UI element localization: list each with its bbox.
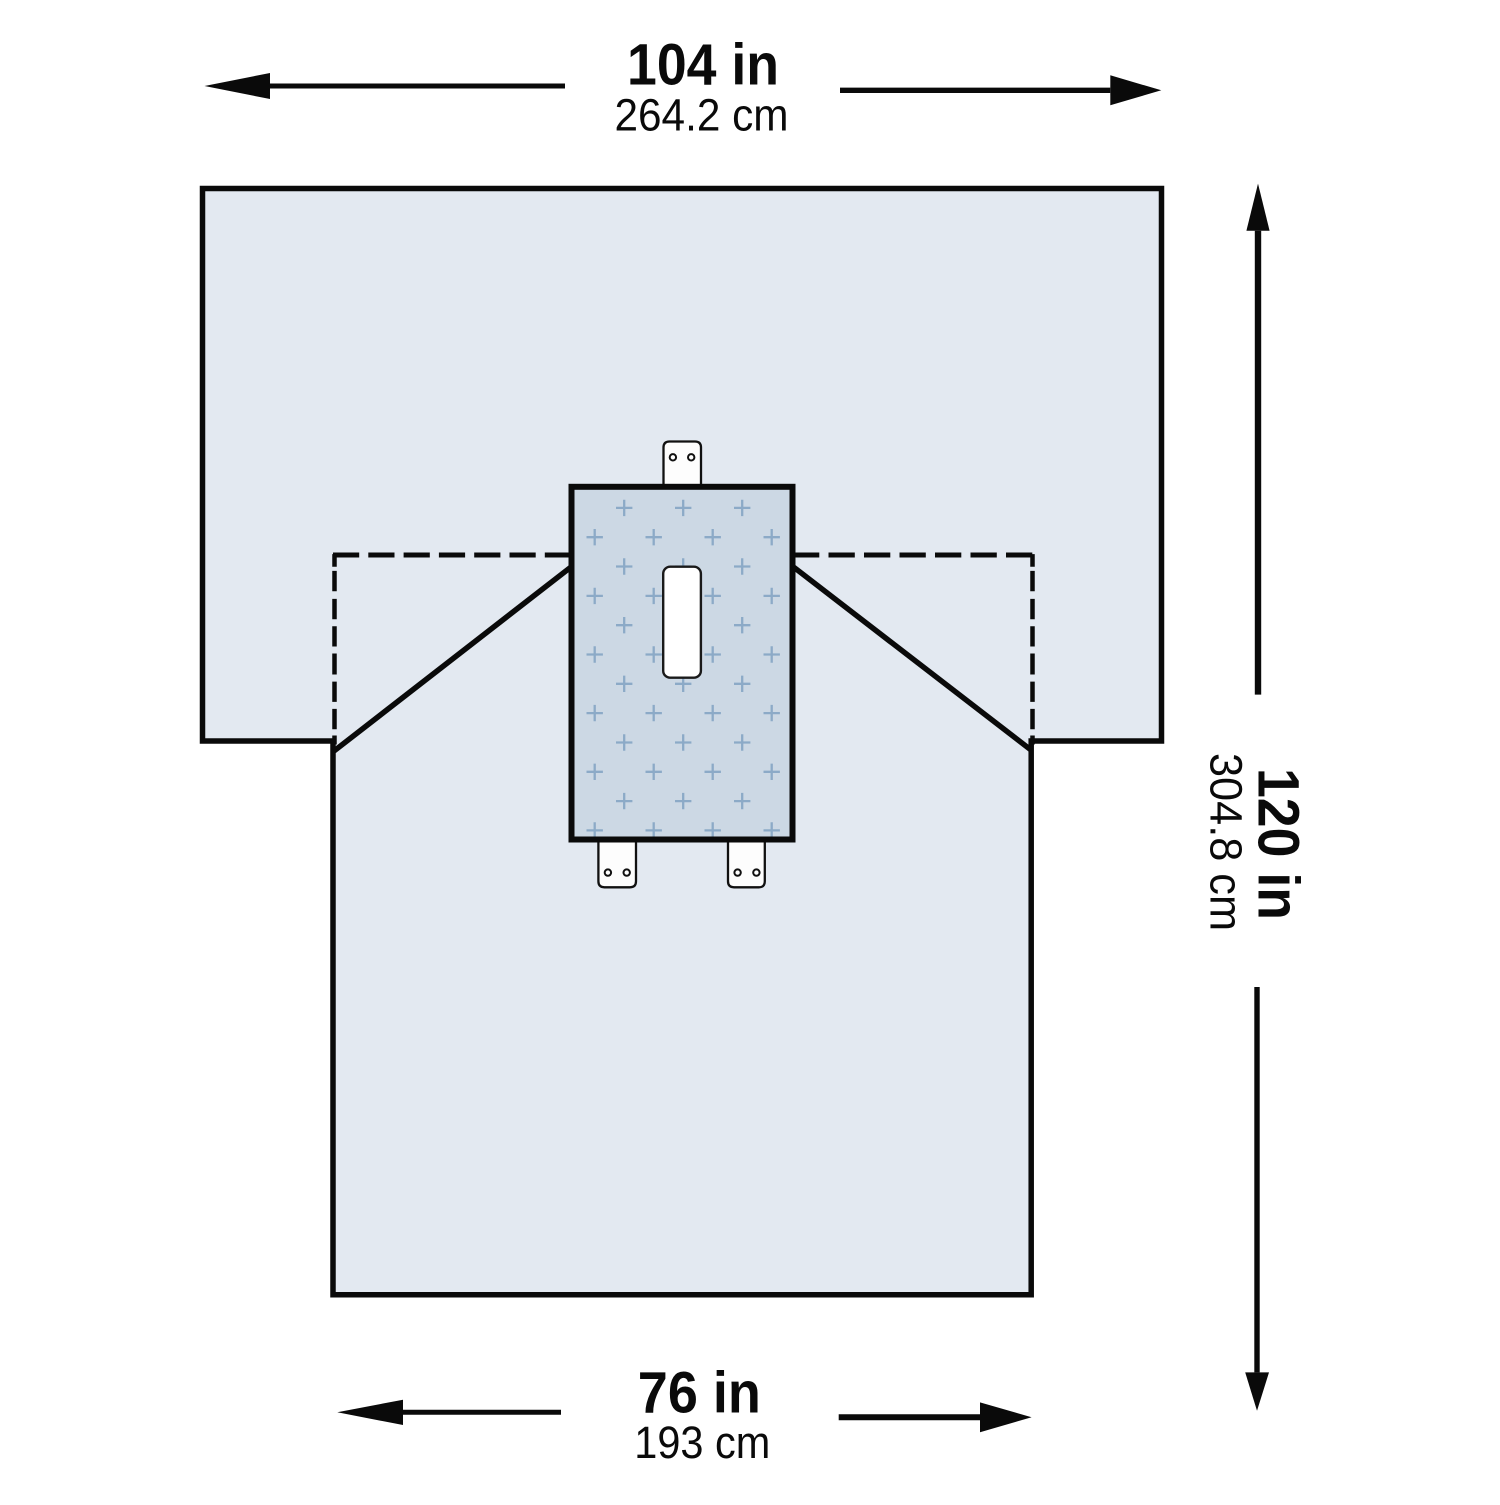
- svg-text:76 in: 76 in: [638, 1360, 761, 1425]
- svg-text:264.2 cm: 264.2 cm: [615, 90, 789, 141]
- svg-text:104 in: 104 in: [627, 33, 779, 98]
- svg-text:193 cm: 193 cm: [634, 1417, 770, 1468]
- svg-text:120 in: 120 in: [1246, 768, 1311, 920]
- svg-text:304.8 cm: 304.8 cm: [1201, 753, 1252, 931]
